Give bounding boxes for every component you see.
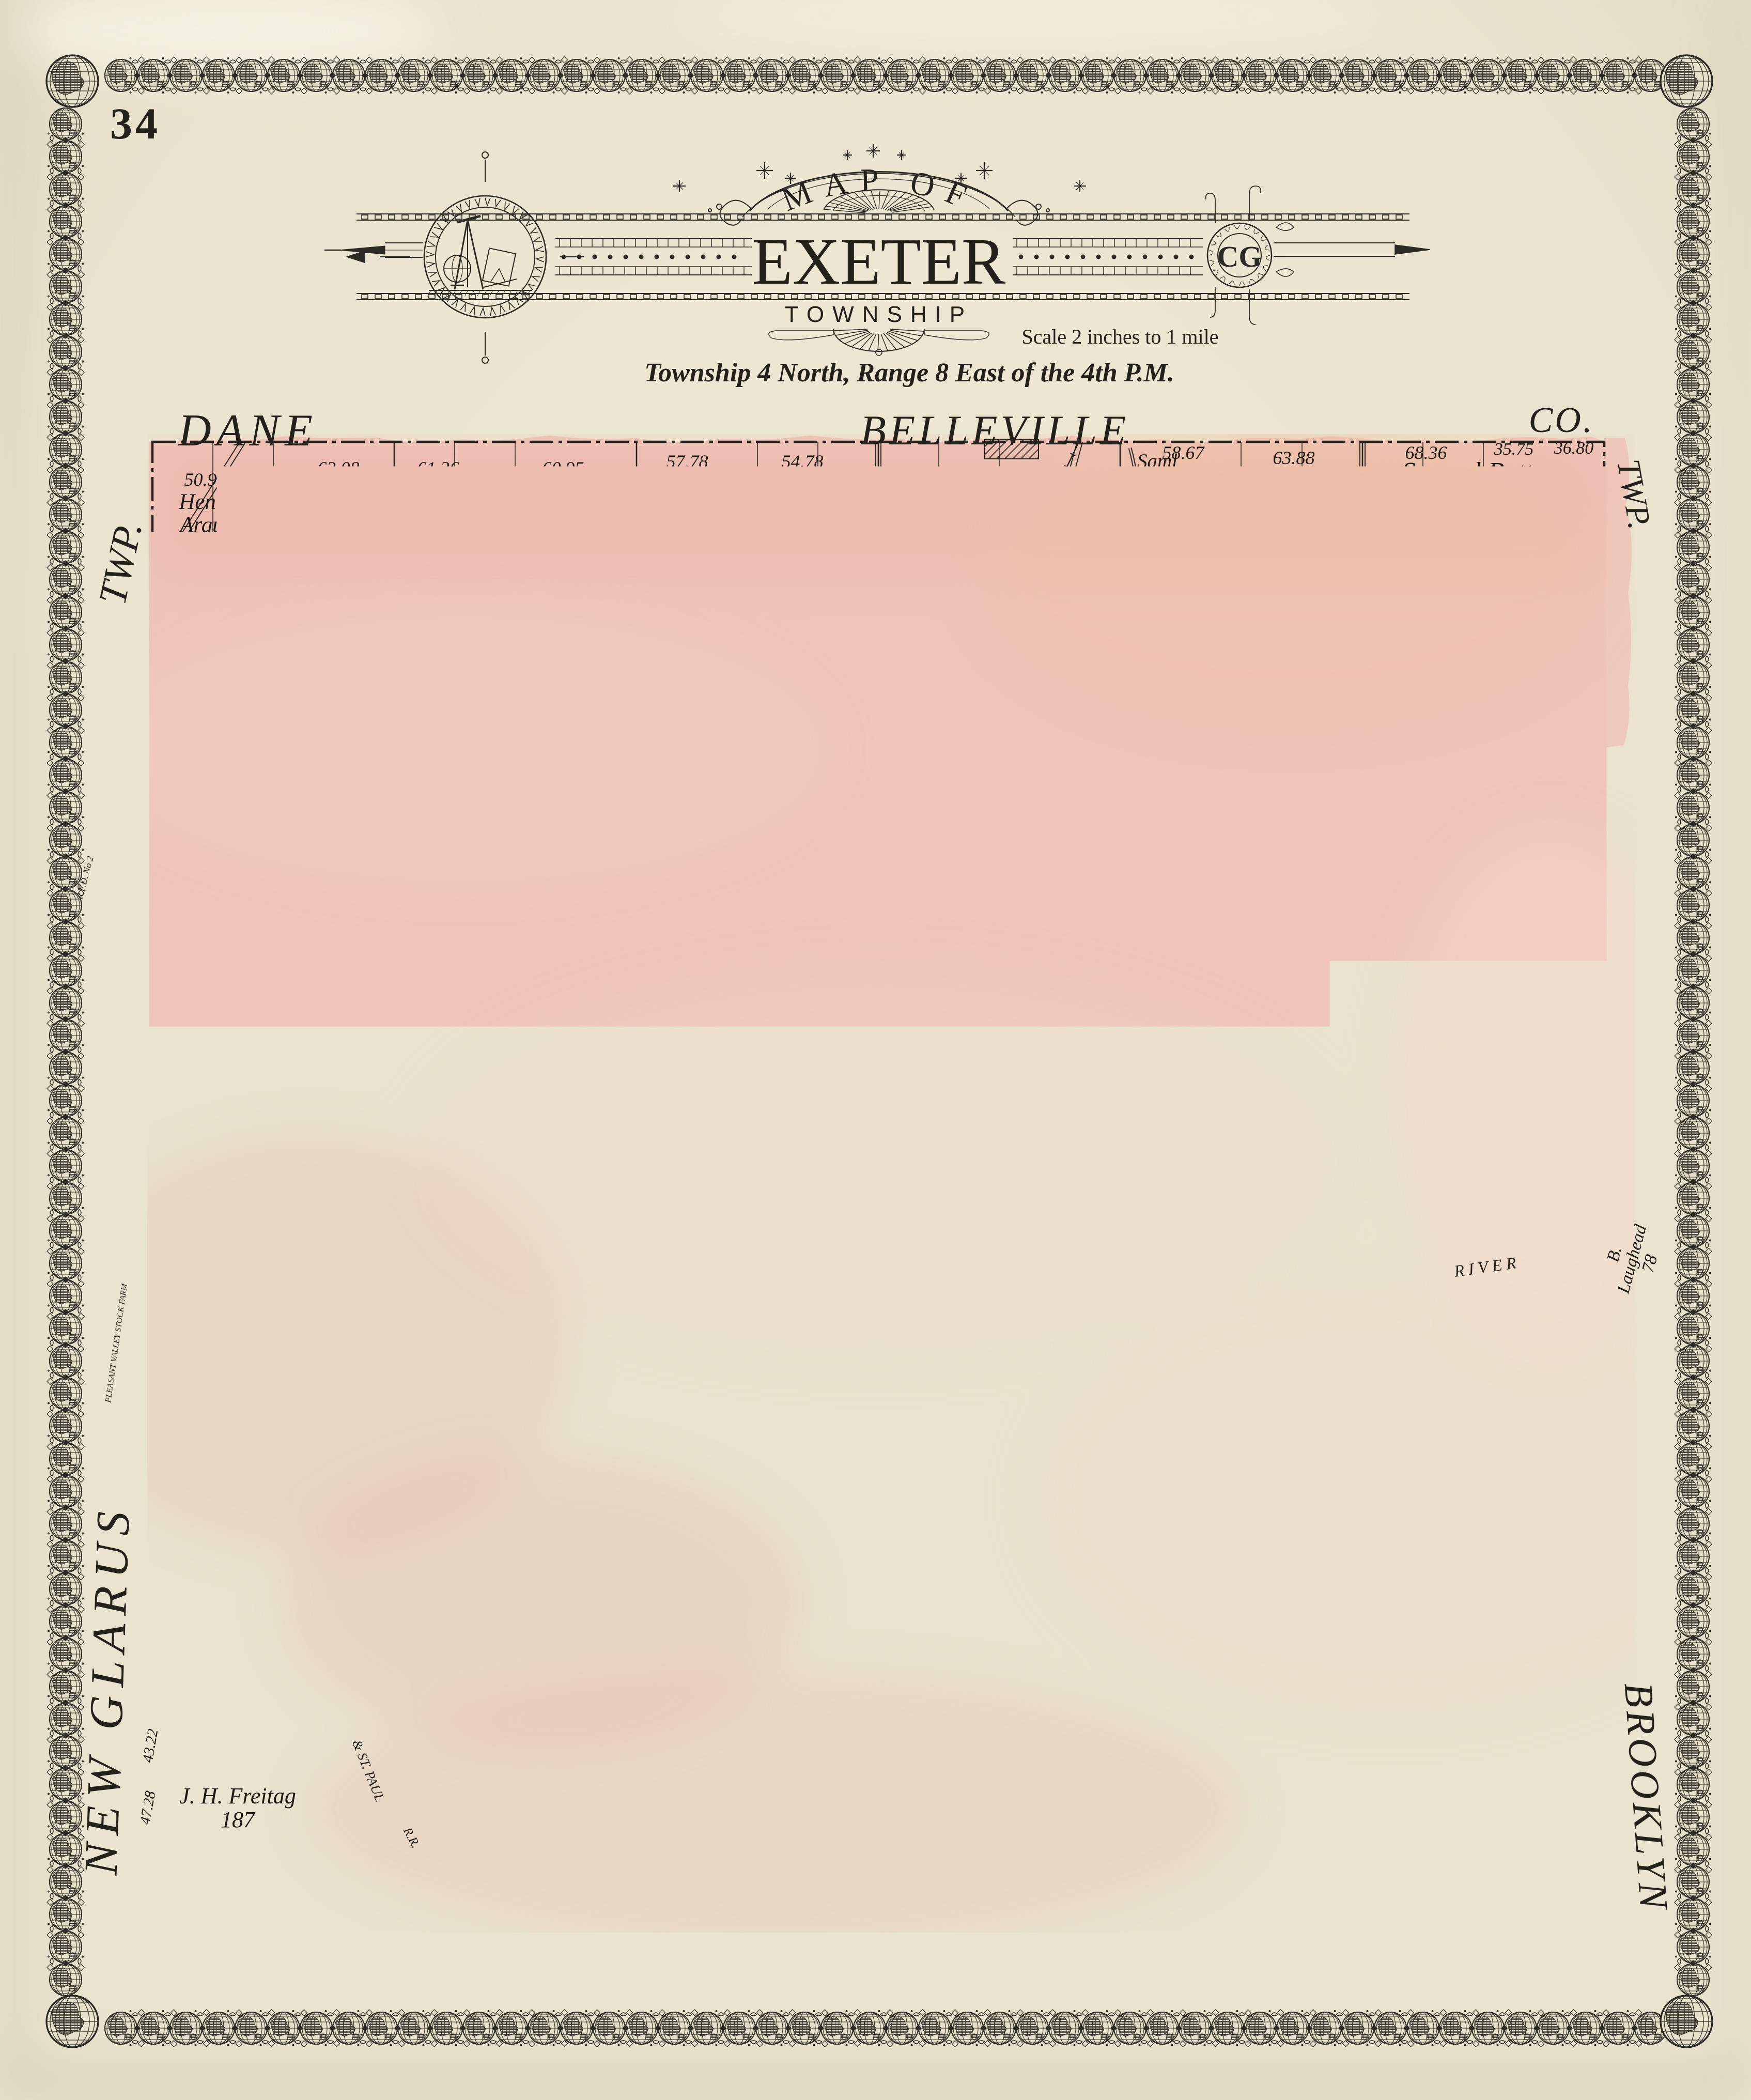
svg-text:26: 26 [1210, 1517, 1247, 1558]
svg-text:Arthur: Arthur [1270, 1592, 1332, 1617]
svg-text:80: 80 [1449, 838, 1476, 863]
svg-text:161: 161 [1103, 1037, 1140, 1064]
svg-text:208: 208 [1450, 1148, 1484, 1173]
svg-text:Jacob: Jacob [763, 990, 817, 1015]
svg-text:160: 160 [907, 892, 943, 919]
svg-text:Paul: Paul [1098, 986, 1144, 1013]
svg-text:40: 40 [322, 1298, 339, 1317]
svg-text:190: 190 [897, 1037, 927, 1059]
svg-text:Babler: Babler [930, 613, 993, 639]
svg-text:375: 375 [474, 626, 507, 650]
svg-text:173.93: 173.93 [408, 1505, 471, 1530]
svg-text:A. Losey: A. Losey [1276, 969, 1338, 989]
svg-text:Jos.: Jos. [749, 1561, 781, 1583]
svg-text:Fahey: Fahey [666, 611, 729, 639]
svg-text:Samuel Butts: Samuel Butts [1402, 457, 1543, 487]
svg-text:55: 55 [1327, 564, 1344, 583]
svg-text:Edwards: Edwards [1232, 1770, 1298, 1790]
svg-text:Albertson: Albertson [1506, 1756, 1592, 1780]
svg-text:Frank Judd: Frank Judd [1164, 1316, 1270, 1341]
svg-text:STA.: STA. [391, 1616, 423, 1632]
svg-text:80: 80 [973, 1627, 995, 1648]
svg-text:Cem.: Cem. [493, 849, 530, 868]
svg-text:Hugh: Hugh [1213, 1818, 1267, 1845]
svg-text:Fred: Fred [588, 1738, 631, 1762]
svg-text:57.78: 57.78 [667, 451, 708, 472]
svg-text:Richards: Richards [1002, 882, 1084, 907]
svg-text:136: 136 [1129, 773, 1160, 795]
svg-text:66: 66 [151, 1690, 169, 1709]
svg-text:Res. of: Res. of [474, 502, 525, 521]
svg-text:60.95: 60.95 [543, 458, 584, 478]
svg-text:ter 40: ter 40 [486, 1878, 522, 1895]
svg-text:80: 80 [1118, 1856, 1135, 1875]
svg-text:E.: E. [189, 1104, 204, 1122]
svg-text:Jas. Ruff: Jas. Ruff [865, 993, 957, 1021]
svg-text:160: 160 [1430, 1890, 1464, 1916]
svg-text:Henry Osborn: Henry Osborn [1235, 703, 1343, 723]
svg-text:17: 17 [444, 1029, 482, 1070]
svg-text:82.63: 82.63 [415, 1813, 464, 1836]
svg-text:80: 80 [857, 1866, 879, 1890]
svg-text:Saml: Saml [1137, 450, 1177, 472]
svg-text:163.25: 163.25 [266, 1388, 333, 1415]
svg-text:C. G. Steiner: C. G. Steiner [229, 734, 370, 763]
svg-text:30: 30 [946, 1351, 962, 1368]
svg-text:80: 80 [1205, 1339, 1228, 1365]
svg-text:Hoesly: Hoesly [302, 1835, 359, 1858]
svg-text:40: 40 [1112, 1205, 1126, 1219]
svg-text:Fahey: Fahey [934, 1336, 972, 1352]
svg-text:60: 60 [1539, 1091, 1561, 1115]
svg-text:DANE: DANE [178, 406, 318, 456]
svg-text:Watkins: Watkins [1516, 1069, 1584, 1092]
svg-text:80: 80 [849, 1779, 872, 1804]
svg-text:148.8: 148.8 [414, 1748, 465, 1773]
svg-text:Qualley: Qualley [1411, 1843, 1483, 1869]
svg-text:Schrepfer: Schrepfer [1075, 1012, 1169, 1039]
svg-text:Church: Church [1168, 995, 1220, 1014]
svg-text:No 2: No 2 [677, 676, 697, 687]
svg-text:54.78: 54.78 [782, 451, 824, 472]
svg-text:Alb. Wealti: Alb. Wealti [1218, 591, 1327, 618]
svg-text:ham: ham [1568, 1160, 1594, 1177]
svg-text:52.90: 52.90 [1295, 887, 1340, 909]
svg-text:50.92: 50.92 [184, 469, 226, 490]
svg-text:Laughead 20: Laughead 20 [1549, 1439, 1613, 1452]
svg-text:Mary: Mary [1564, 1129, 1598, 1146]
svg-text:Joshua: Joshua [591, 855, 659, 882]
svg-text:Wm. Reese: Wm. Reese [1469, 1517, 1569, 1542]
svg-text:Doyle: Doyle [1019, 1639, 1067, 1661]
svg-text:Jr.: Jr. [343, 1061, 361, 1082]
svg-text:W. Argue: W. Argue [174, 555, 255, 580]
svg-text:160: 160 [1165, 1636, 1202, 1663]
svg-text:18: 18 [221, 1032, 258, 1074]
svg-text:40: 40 [994, 1127, 1014, 1146]
svg-text:117: 117 [1540, 1388, 1572, 1412]
svg-text:40: 40 [704, 1877, 722, 1898]
svg-text:65: 65 [474, 997, 498, 1019]
svg-text:Arque: Arque [189, 627, 244, 651]
svg-text:Freitag: Freitag [818, 499, 863, 515]
svg-text:40: 40 [1248, 758, 1261, 773]
svg-text:160: 160 [1077, 1531, 1114, 1558]
svg-text:40: 40 [324, 1164, 343, 1185]
svg-text:Disch: Disch [175, 872, 233, 900]
svg-text:A.D.: A.D. [847, 1821, 888, 1845]
svg-text:360: 360 [1466, 1288, 1491, 1306]
svg-text:61: 61 [957, 642, 975, 663]
svg-text:1: 1 [1536, 546, 1542, 561]
svg-text:BELLEVILLE: BELLEVILLE [500, 674, 564, 687]
svg-text:(56): (56) [216, 532, 246, 551]
svg-text:Fred: Fred [333, 1022, 370, 1043]
svg-text:Hoesly: Hoesly [1131, 666, 1194, 690]
svg-text:160: 160 [679, 637, 716, 665]
svg-text:80: 80 [1072, 1381, 1089, 1399]
svg-text:Factory: Factory [1198, 1103, 1241, 1118]
svg-text:bach 20: bach 20 [495, 1082, 538, 1097]
svg-text:159.50: 159.50 [1400, 1043, 1463, 1068]
svg-text:Tourdot: Tourdot [561, 1389, 628, 1413]
svg-text:Sam: Sam [828, 483, 854, 500]
svg-text:Wm.: Wm. [1426, 1819, 1467, 1845]
svg-text:100: 100 [337, 1080, 365, 1101]
svg-text:120: 120 [270, 1830, 290, 1845]
svg-text:No 3: No 3 [1515, 1665, 1533, 1675]
svg-text:W. B.: W. B. [1020, 858, 1068, 884]
svg-text:Jas.: Jas. [754, 1631, 780, 1649]
svg-text:158: 158 [963, 551, 993, 573]
svg-text:Jacob: Jacob [934, 590, 988, 615]
svg-text:Doyle: Doyle [1521, 999, 1579, 1026]
svg-text:80: 80 [1360, 1739, 1378, 1758]
svg-text:157: 157 [658, 1255, 687, 1275]
svg-text:Gottfred: Gottfred [668, 1639, 722, 1657]
svg-text:Truttman: Truttman [255, 1363, 344, 1390]
svg-text:Scale 2 inches to 1 mile: Scale 2 inches to 1 mile [1021, 325, 1218, 348]
svg-text:Hultman: Hultman [763, 1131, 849, 1157]
svg-text:Carroll: Carroll [827, 1755, 894, 1781]
svg-text:120: 120 [558, 996, 595, 1023]
svg-text:CO.: CO. [1529, 400, 1594, 440]
svg-text:40: 40 [507, 1241, 521, 1256]
svg-text:H.: H. [704, 1839, 722, 1859]
svg-text:Maria Smith: Maria Smith [1233, 628, 1345, 652]
svg-text:40: 40 [1070, 1135, 1090, 1157]
svg-text:Wm. Marshall: Wm. Marshall [1402, 1124, 1532, 1150]
svg-text:Disch: Disch [432, 1398, 476, 1418]
svg-text:Marg.: Marg. [670, 1561, 720, 1583]
svg-text:Klassie: Klassie [1127, 471, 1187, 493]
svg-text:66.5: 66.5 [586, 901, 618, 921]
svg-text:60: 60 [408, 836, 430, 860]
svg-text:O.M. Scott: O.M. Scott [873, 462, 978, 489]
svg-text:152: 152 [638, 1164, 675, 1191]
svg-text:Michael: Michael [656, 585, 738, 613]
svg-text:120: 120 [910, 651, 931, 666]
svg-text:160: 160 [731, 1388, 768, 1415]
svg-text:John Flahey: John Flahey [1226, 488, 1347, 515]
svg-text:J. Grunder: J. Grunder [572, 1228, 684, 1256]
svg-text:80: 80 [583, 1109, 605, 1130]
svg-text:John Christen: John Christen [1027, 1234, 1164, 1261]
svg-text:170.91: 170.91 [1447, 486, 1502, 508]
svg-text:50.60: 50.60 [577, 1473, 617, 1492]
svg-text:Christ Kuehn: Christ Kuehn [1077, 578, 1197, 602]
svg-text:120: 120 [547, 1866, 580, 1890]
svg-text:105.5 Est.: 105.5 Est. [1227, 1789, 1302, 1810]
svg-text:Fred Zumkehr: Fred Zumkehr [185, 1758, 311, 1782]
svg-text:40: 40 [996, 1400, 1009, 1415]
svg-text:61.5: 61.5 [578, 587, 611, 608]
svg-text:J.E. Stuessey: J.E. Stuessey [183, 1571, 288, 1594]
svg-text:310: 310 [426, 1264, 457, 1286]
svg-text:Lehnherr: Lehnherr [1388, 1019, 1474, 1044]
svg-text:1: 1 [661, 1850, 668, 1865]
svg-text:160: 160 [886, 1509, 906, 1524]
svg-text:80: 80 [952, 805, 966, 820]
svg-text:Jos. H.: Jos. H. [302, 1814, 359, 1836]
svg-text:Oswald: Oswald [200, 651, 275, 677]
svg-text:John J.: John J. [168, 846, 240, 874]
svg-text:70: 70 [1053, 1864, 1075, 1888]
svg-text:157.5: 157.5 [1018, 929, 1070, 954]
svg-text:Saml: Saml [464, 566, 518, 595]
svg-text:40: 40 [1005, 1709, 1021, 1727]
svg-text:Eugene: Eugene [619, 1113, 693, 1140]
svg-text:90: 90 [461, 1624, 485, 1646]
svg-text:Hofsted-: Hofsted- [477, 1863, 530, 1879]
svg-text:160: 160 [1077, 1260, 1114, 1287]
svg-text:E. S. Ace: E. S. Ace [532, 971, 620, 998]
svg-text:130: 130 [653, 903, 680, 924]
svg-text:BELLEVILLE: BELLEVILLE [1356, 1664, 1414, 1676]
svg-text:19: 19 [221, 1273, 258, 1315]
svg-text:156: 156 [822, 781, 853, 803]
svg-text:Arthur: Arthur [1015, 1618, 1071, 1640]
svg-text:No 1: No 1 [351, 1170, 371, 1181]
svg-text:M. Rasmussen: M. Rasmussen [1231, 531, 1372, 558]
svg-text:J. J.: J. J. [280, 1338, 320, 1365]
svg-text:G. Burki: G. Burki [1058, 1728, 1133, 1752]
svg-text:J. D.: J. D. [839, 1732, 882, 1757]
svg-text:116: 116 [1080, 1751, 1111, 1774]
svg-text:80: 80 [583, 1434, 605, 1458]
svg-text:Staley: Staley [670, 1582, 720, 1604]
svg-text:26: 26 [189, 1137, 205, 1155]
svg-text:39.25: 39.25 [741, 1603, 787, 1625]
svg-text:80: 80 [1498, 773, 1511, 787]
svg-text:(371): (371) [352, 617, 399, 641]
svg-text:83: 83 [1451, 1099, 1474, 1124]
svg-text:76.75: 76.75 [308, 1856, 353, 1878]
svg-text:40: 40 [411, 1635, 427, 1652]
svg-text:65.5: 65.5 [1401, 844, 1422, 876]
svg-text:75: 75 [1280, 561, 1298, 580]
svg-text:MEADOW BROOK STOCK FARM: MEADOW BROOK STOCK FARM [151, 1740, 319, 1753]
svg-text:Losey: Losey [1294, 867, 1342, 889]
svg-text:Grunder 20: Grunder 20 [733, 1089, 796, 1104]
svg-text:112: 112 [189, 777, 224, 804]
svg-text:Schmidt: Schmidt [198, 676, 277, 703]
svg-text:20: 20 [469, 1273, 506, 1315]
svg-text:34: 34 [110, 99, 161, 148]
svg-text:BELLEVILLE: BELLEVILLE [1590, 1041, 1599, 1088]
svg-text:61.36: 61.36 [417, 458, 459, 478]
svg-text:J. H. Freitag: J. H. Freitag [179, 1783, 296, 1809]
svg-text:40: 40 [763, 1746, 777, 1761]
svg-text:80: 80 [1161, 605, 1179, 624]
svg-text:Doyle: Doyle [1274, 1616, 1329, 1641]
svg-text:Wm. Hefty: Wm. Hefty [207, 1095, 310, 1122]
svg-text:B. Hoesly: B. Hoesly [395, 1223, 494, 1251]
svg-text:22: 22 [986, 1268, 1024, 1309]
svg-text:7: 7 [235, 779, 253, 821]
svg-text:80.5: 80.5 [1394, 769, 1437, 796]
svg-text:R.F.D.: R.F.D. [1460, 1665, 1484, 1675]
svg-text:63.88: 63.88 [1273, 447, 1315, 468]
svg-text:Deitzsch: Deitzsch [1141, 1611, 1225, 1638]
svg-text:BELLEVILLE: BELLEVILLE [937, 749, 948, 801]
svg-text:Henry Klasse: Henry Klasse [588, 529, 734, 558]
svg-text:Sam Christen, Jr.: Sam Christen, Jr. [438, 520, 559, 539]
svg-text:122.60: 122.60 [225, 1120, 291, 1147]
svg-text:BURR OAK STOCK & GRAIN FARM: BURR OAK STOCK & GRAIN FARM [556, 1772, 737, 1785]
svg-text:School: School [1270, 1688, 1313, 1706]
svg-text:16.66: 16.66 [1324, 682, 1360, 700]
svg-text:No 2: No 2 [465, 923, 485, 934]
svg-text:R.F.D. No 3: R.F.D. No 3 [1190, 1244, 1201, 1288]
svg-text:CG: CG [1217, 240, 1262, 273]
svg-text:60: 60 [1508, 1601, 1521, 1616]
svg-text:TWP.: TWP. [1486, 1916, 1577, 1959]
svg-text:R.F.D.: R.F.D. [296, 1170, 323, 1181]
svg-text:J.H.L.: J.H.L. [1567, 1426, 1596, 1439]
svg-text:28.75: 28.75 [1288, 987, 1327, 1007]
svg-text:NEW GLARUS: NEW GLARUS [296, 921, 365, 934]
svg-text:Baumgartner: Baumgartner [508, 1701, 630, 1726]
svg-text:Est.: Est. [1026, 906, 1061, 931]
svg-text:80: 80 [1152, 688, 1174, 713]
svg-text:Klitzman: Klitzman [1495, 1703, 1563, 1723]
svg-text:Sarah Ferguson: Sarah Ferguson [1175, 1399, 1305, 1421]
svg-text:Mat: Mat [905, 842, 945, 869]
svg-text:Est.: Est. [1429, 1867, 1464, 1892]
svg-text:Gottfred: Gottfred [1393, 995, 1469, 1021]
svg-text:Aug: Aug [575, 1366, 612, 1390]
svg-text:40: 40 [1038, 636, 1051, 651]
svg-text:Christ Elmer: Christ Elmer [1076, 732, 1208, 760]
svg-text:Schuep-: Schuep- [495, 1068, 538, 1083]
svg-text:50: 50 [1619, 760, 1636, 779]
svg-text:Eliz. Smith: Eliz. Smith [1413, 1075, 1512, 1101]
svg-text:TOWNSHIP: TOWNSHIP [785, 302, 973, 327]
svg-text:DAYTON: DAYTON [1228, 928, 1418, 971]
svg-text:63.08: 63.08 [318, 458, 360, 478]
svg-text:160: 160 [427, 720, 447, 735]
svg-text:Jakob: Jakob [537, 1821, 589, 1845]
svg-text:Frank: Frank [1523, 1046, 1577, 1070]
svg-text:10: 10 [1155, 551, 1175, 574]
svg-text:Joseph Voegeli: Joseph Voegeli [747, 739, 907, 768]
svg-text:Christen: Christen [444, 594, 537, 623]
svg-text:John Doerst: John Doerst [296, 555, 428, 585]
svg-text:EXETER: EXETER [752, 225, 1006, 298]
svg-text:40: 40 [943, 1711, 959, 1730]
svg-text:Schuepback: Schuepback [736, 1014, 846, 1039]
svg-text:80: 80 [1373, 1402, 1396, 1427]
svg-text:Geo. Karls: Geo. Karls [1432, 576, 1549, 606]
svg-text:40: 40 [824, 1717, 841, 1735]
svg-text:No 1: No 1 [755, 1665, 774, 1675]
svg-text:80: 80 [1358, 1834, 1382, 1856]
svg-text:S. Watkins: S. Watkins [1510, 1365, 1600, 1389]
svg-text:36.80: 36.80 [1554, 439, 1594, 458]
svg-text:M. Moser: M. Moser [396, 1790, 482, 1814]
svg-text:School: School [578, 1628, 626, 1647]
svg-text:Staley: Staley [627, 1138, 686, 1165]
svg-text:O.B.Ace 20: O.B.Ace 20 [734, 1068, 795, 1083]
svg-text:80: 80 [1134, 627, 1147, 642]
svg-text:171: 171 [663, 1275, 691, 1296]
svg-text:40: 40 [548, 486, 562, 501]
svg-text:14: 14 [1203, 1025, 1241, 1067]
svg-text:J. V.B.: J. V.B. [894, 1229, 955, 1256]
svg-text:Wm. &: Wm. & [1212, 1378, 1269, 1400]
svg-text:80: 80 [767, 1501, 791, 1523]
svg-text:Frank: Frank [1242, 1751, 1288, 1771]
svg-text:Rudy Disch: Rudy Disch [366, 813, 470, 837]
svg-text:Lewis: Lewis [1366, 1523, 1413, 1545]
svg-text:160: 160 [551, 1748, 585, 1773]
svg-text:40: 40 [701, 491, 715, 506]
svg-text:36: 36 [1456, 1763, 1493, 1804]
svg-text:15: 15 [956, 1029, 994, 1070]
svg-text:40: 40 [1110, 603, 1127, 622]
svg-text:Cheese: Cheese [1200, 1089, 1238, 1104]
svg-text:Carroll: Carroll [836, 1844, 900, 1867]
svg-text:9: 9 [726, 777, 745, 819]
svg-text:J. L. Moore: J. L. Moore [386, 1481, 492, 1506]
svg-text:40: 40 [1280, 722, 1298, 743]
svg-text:Kubli: Kubli [178, 1121, 214, 1139]
svg-text:Fred Gafke: Fred Gafke [760, 527, 882, 557]
svg-text:Jacob: Jacob [1141, 509, 1189, 532]
svg-text:MT. PLEASANT: MT. PLEASANT [231, 1923, 559, 1970]
svg-text:80: 80 [844, 1444, 858, 1459]
svg-text:Kubli: Kubli [312, 1145, 354, 1165]
svg-text:R.: R. [476, 798, 490, 815]
svg-text:Jacob M. Marty: Jacob M. Marty [156, 1492, 299, 1517]
svg-text:Richards: Richards [881, 1255, 968, 1281]
svg-text:120: 120 [1029, 1660, 1059, 1682]
svg-text:Disch: Disch [177, 751, 236, 778]
svg-text:F. K.: F. K. [1362, 1354, 1406, 1380]
svg-text:157.5: 157.5 [859, 791, 898, 810]
svg-text:Cem.: Cem. [1218, 1691, 1252, 1709]
svg-text:Fred: Fred [1529, 1733, 1571, 1757]
svg-text:Jacob: Jacob [446, 1841, 484, 1859]
svg-text:B.: B. [1173, 1586, 1194, 1613]
svg-text:187: 187 [221, 1807, 256, 1832]
svg-text:Hauser: Hauser [889, 867, 961, 894]
svg-text:20: 20 [476, 829, 491, 846]
svg-text:Fred Elmer: Fred Elmer [1288, 1710, 1388, 1734]
svg-text:F.&H.: F.&H. [431, 1379, 477, 1399]
svg-text:MONTICELLO: MONTICELLO [567, 1664, 631, 1676]
